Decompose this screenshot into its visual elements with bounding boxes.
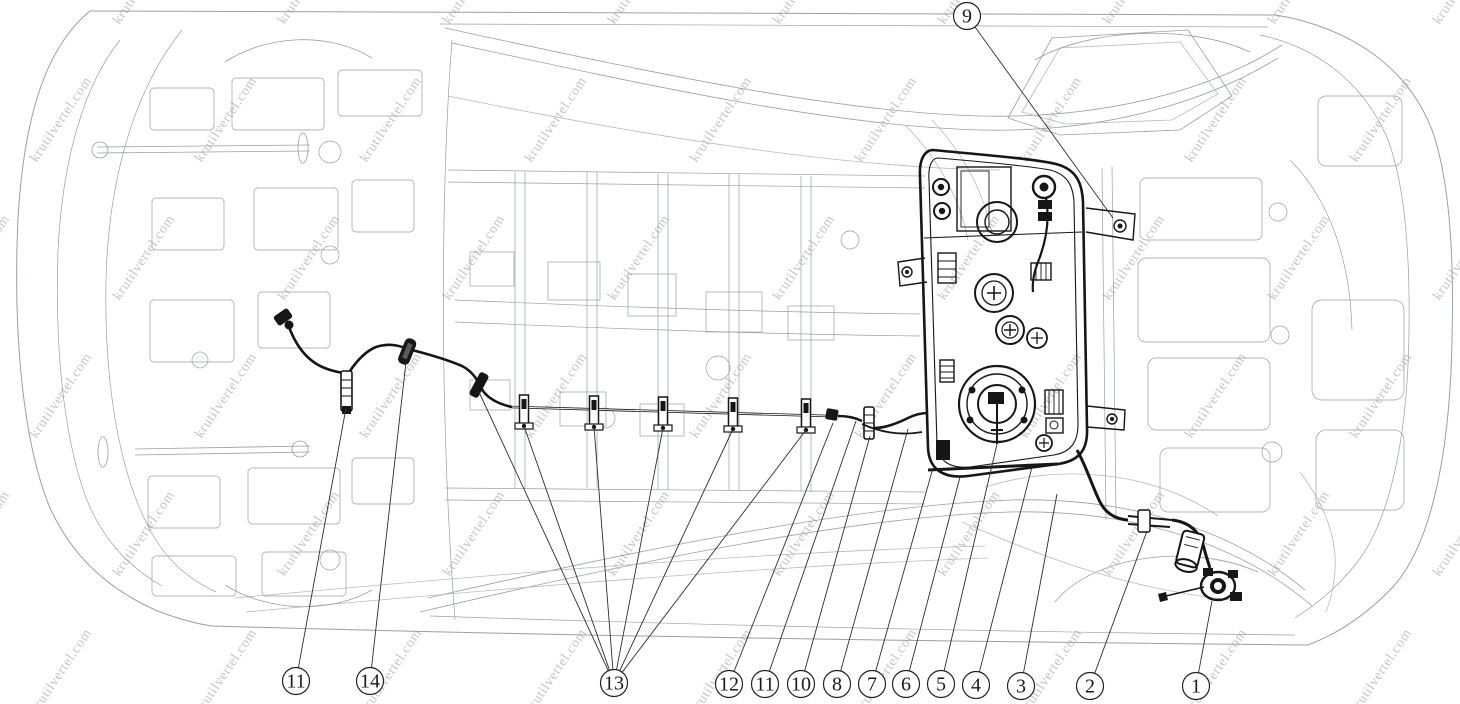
leader-line-8 — [841, 429, 908, 671]
fuel-system-drawing — [274, 150, 1242, 602]
tank-bracket-right-mid — [1087, 406, 1125, 430]
callout-14: 14 — [357, 668, 384, 695]
callout-5: 5 — [928, 671, 955, 698]
callout-6: 6 — [893, 671, 920, 698]
front-connector — [341, 371, 352, 411]
rear-structure — [1102, 96, 1404, 520]
callout-number: 14 — [360, 671, 380, 693]
leader-line-13 — [622, 430, 806, 672]
callout-8: 8 — [824, 671, 851, 698]
callout-number: 1 — [1191, 676, 1201, 698]
floor-structure — [445, 170, 925, 504]
leader-line-3 — [1024, 494, 1058, 673]
callout-11: 11 — [752, 671, 779, 698]
roof-panel — [905, 30, 1232, 240]
callout-1: 1 — [1183, 673, 1210, 700]
callout-number: 8 — [832, 674, 842, 696]
filler-head — [1201, 568, 1242, 601]
vapor-canister — [1174, 530, 1205, 574]
callout-4: 4 — [963, 672, 990, 699]
callout-11: 11 — [283, 668, 310, 695]
leader-line-13 — [620, 429, 733, 671]
leader-line-6 — [909, 477, 960, 671]
filler-neck — [1077, 450, 1242, 602]
callout-number: 13 — [604, 673, 624, 695]
fuel-line — [274, 308, 828, 416]
callout-13: 13 — [601, 670, 628, 697]
vehicle-fuel-system-diagram: 911141312111087654321 — [0, 0, 1460, 704]
fuel-pump-flange — [959, 366, 1035, 444]
leader-line-1 — [1199, 601, 1213, 673]
leader-line-14 — [372, 362, 407, 668]
callout-number: 7 — [867, 674, 877, 696]
callout-number: 4 — [971, 675, 981, 697]
callout-10: 10 — [788, 671, 815, 698]
front-structure — [148, 40, 455, 620]
callout-number: 9 — [962, 6, 972, 28]
leader-line-13 — [479, 392, 608, 671]
callout-9: 9 — [954, 3, 981, 30]
callout-number: 2 — [1085, 676, 1095, 698]
callout-12: 12 — [716, 671, 743, 698]
callout-number: 11 — [755, 674, 774, 696]
diagram-stage: krutilvertel.comkrutilvertel.comkrutilve… — [0, 0, 1460, 704]
callout-3: 3 — [1008, 673, 1035, 700]
callout-number: 10 — [791, 674, 811, 696]
leader-line-2 — [1095, 531, 1147, 673]
callout-number: 5 — [936, 674, 946, 696]
tank-inlet-connectors — [825, 407, 928, 439]
leader-line-11 — [769, 421, 856, 671]
callout-7: 7 — [859, 671, 886, 698]
car-body-drawing — [17, 11, 1453, 645]
filler-bolt — [1158, 587, 1204, 602]
tank-bracket-right-top — [1086, 208, 1135, 240]
callout-number: 3 — [1016, 676, 1026, 698]
leader-line-5 — [944, 444, 997, 671]
callout-2: 2 — [1077, 673, 1104, 700]
leader-line-10 — [805, 436, 870, 671]
callout-number: 6 — [901, 674, 911, 696]
callout-number: 12 — [719, 674, 739, 696]
callout-number: 11 — [286, 671, 305, 693]
